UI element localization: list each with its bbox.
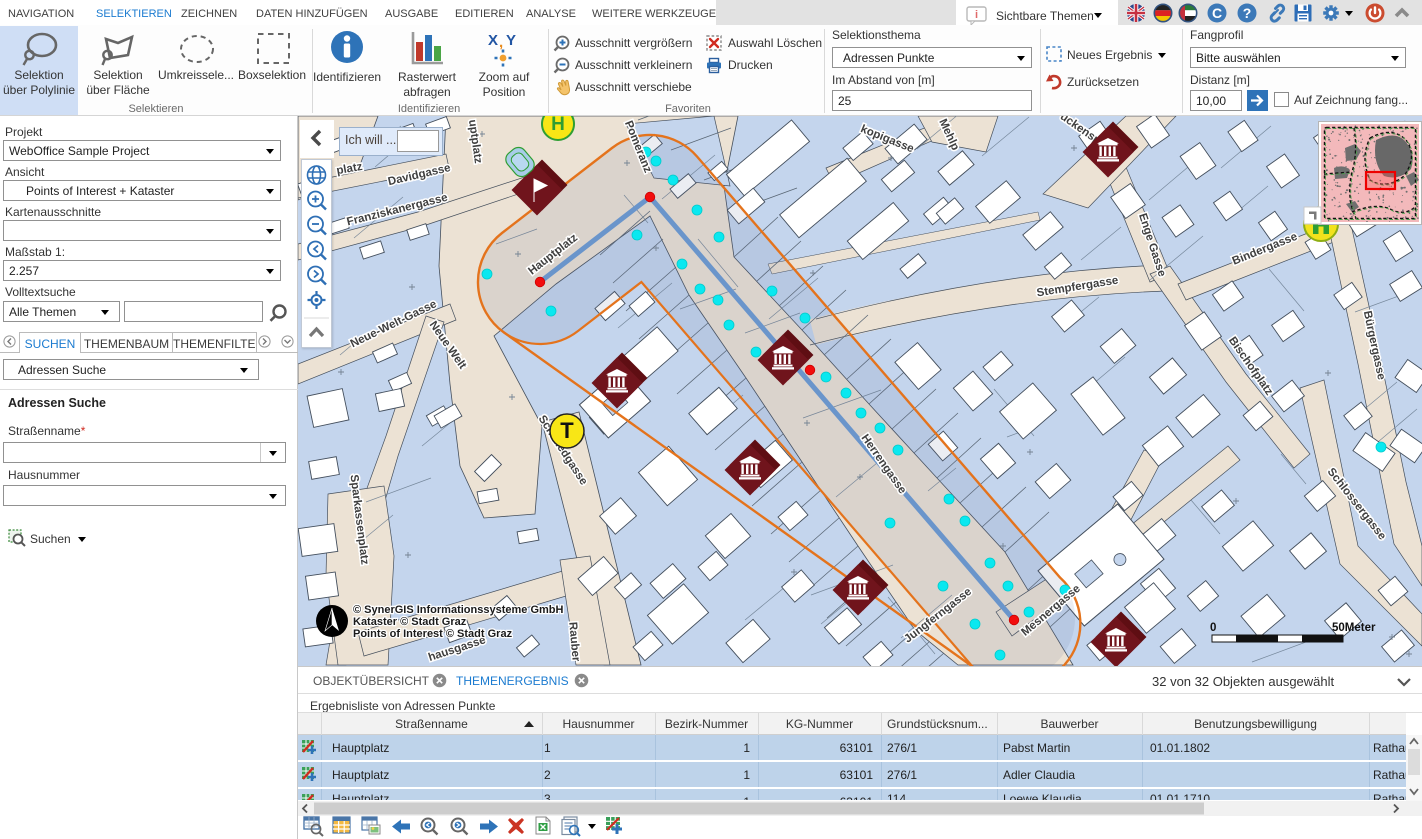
svg-text:© SynerGIS Informationssysteme: © SynerGIS Informationssysteme GmbH <box>353 604 563 616</box>
svg-text:H: H <box>551 116 565 135</box>
svg-text:,: , <box>499 34 503 51</box>
svg-text:X: X <box>488 32 498 49</box>
svg-text:Points of Interest © Stadt Gra: Points of Interest © Stadt Graz <box>353 628 513 640</box>
svg-text:?: ? <box>1243 5 1252 21</box>
svg-text:T: T <box>560 418 574 443</box>
svg-text:Y: Y <box>506 32 516 49</box>
svg-text:C: C <box>1212 5 1222 21</box>
svg-text:50Meter: 50Meter <box>1332 622 1376 634</box>
svg-text:0: 0 <box>1210 622 1216 634</box>
svg-text:Kataster © Stadt Graz: Kataster © Stadt Graz <box>353 616 467 628</box>
svg-text:i: i <box>975 9 978 21</box>
